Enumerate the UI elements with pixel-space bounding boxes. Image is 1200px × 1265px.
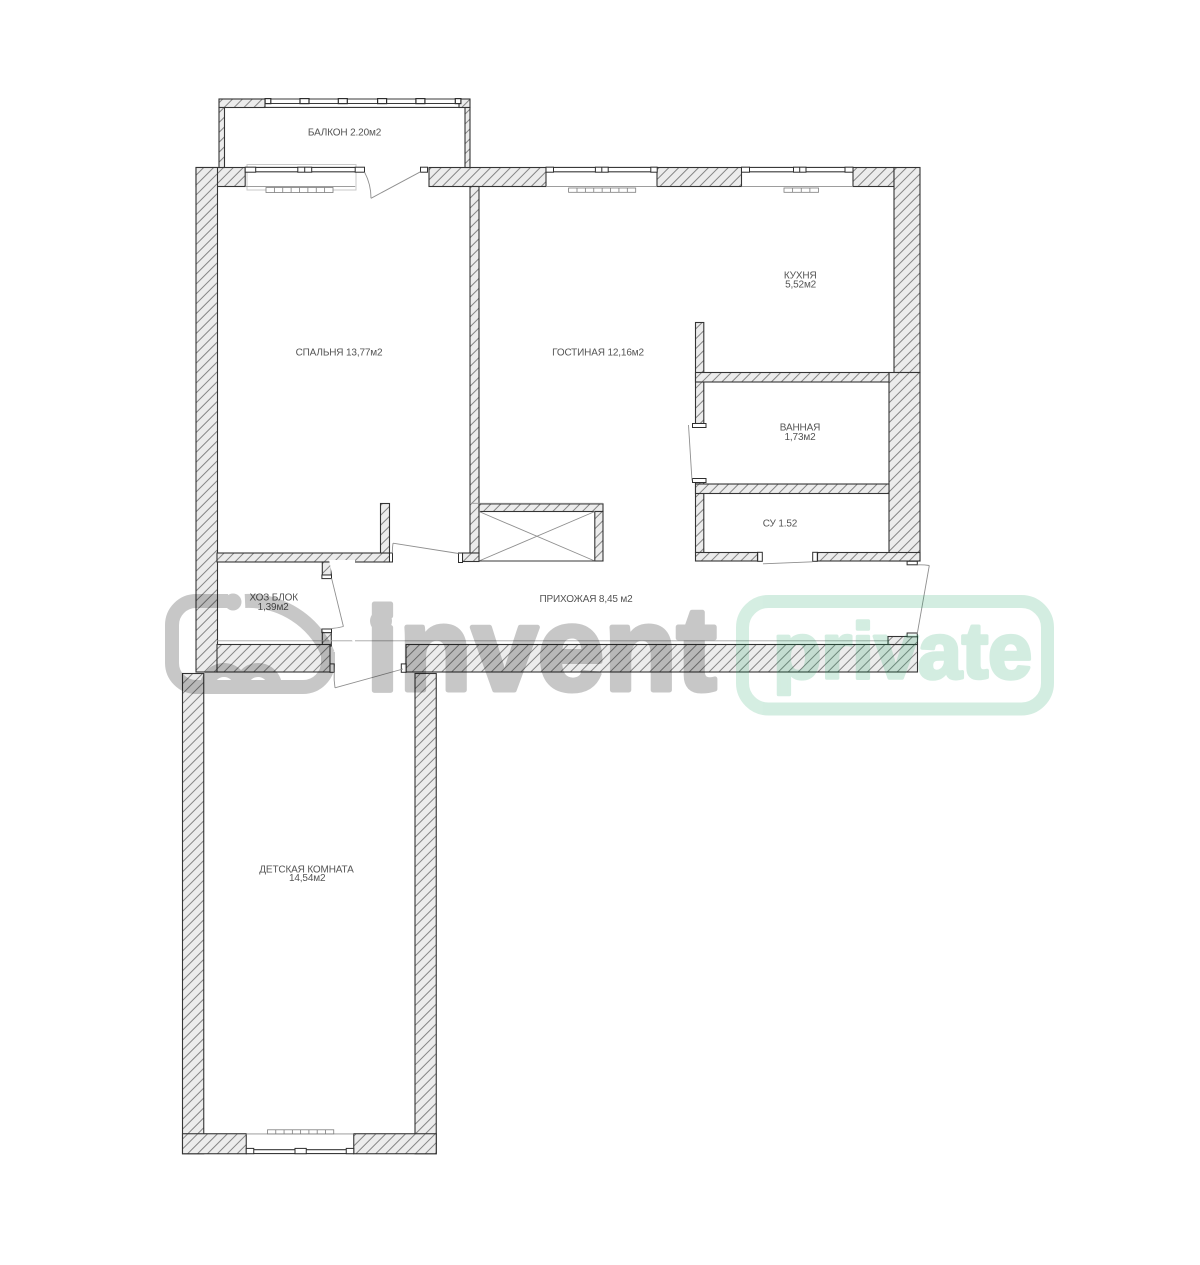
svg-text:5,52м2: 5,52м2 (785, 280, 817, 291)
svg-text:ГОСТИНАЯ 12,16м2: ГОСТИНАЯ 12,16м2 (552, 348, 644, 359)
svg-text:invent: invent (366, 583, 716, 716)
svg-text:СПАЛЬНЯ 13,77м2: СПАЛЬНЯ 13,77м2 (296, 348, 383, 359)
svg-text:private: private (773, 606, 1032, 695)
svg-text:СУ 1.52: СУ 1.52 (763, 518, 798, 529)
svg-text:14,54м2: 14,54м2 (289, 873, 326, 884)
svg-text:1,73м2: 1,73м2 (785, 432, 817, 443)
svg-text:БАЛКОН 2.20м2: БАЛКОН 2.20м2 (308, 128, 382, 139)
